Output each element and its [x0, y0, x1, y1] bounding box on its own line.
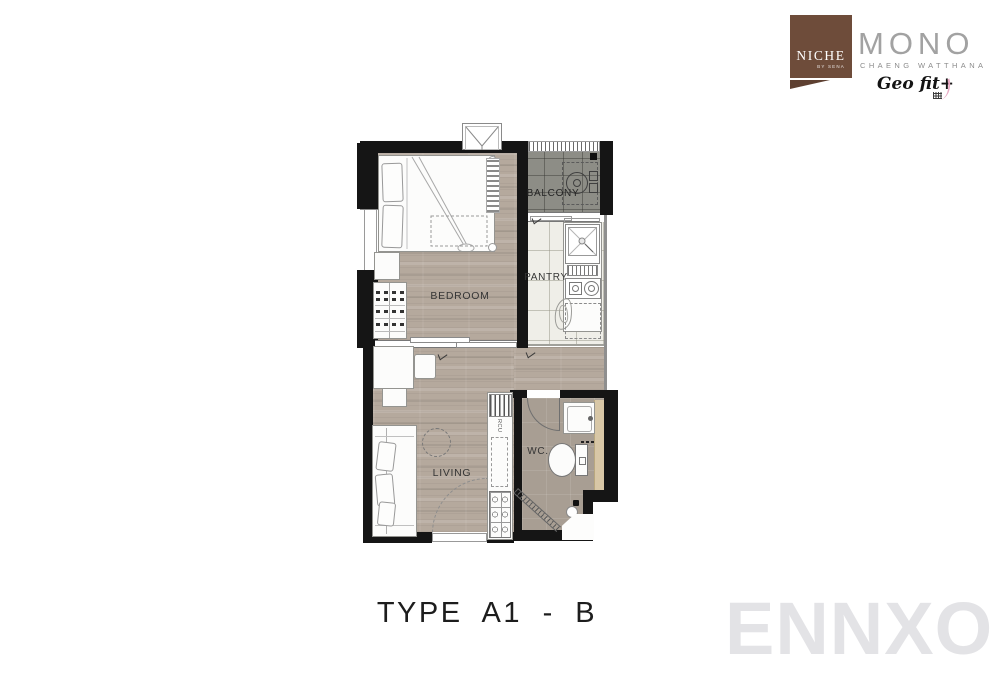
towel-rail — [581, 441, 595, 443]
kitchen-sink — [565, 224, 600, 264]
wardrobe-hangers — [376, 323, 404, 326]
wardrobe-hangers — [376, 291, 404, 294]
wardrobe-shelf-line — [375, 305, 405, 306]
wall-balcony-right — [600, 141, 613, 215]
pantry-bottom-line — [528, 344, 604, 346]
toilet-flush-button — [579, 457, 586, 465]
wardrobe-hangers — [376, 298, 404, 301]
plant-leaf — [558, 305, 568, 324]
desk — [373, 346, 414, 389]
wc-floor-drain — [573, 500, 579, 506]
floor-plan: BALCONY BEDROOM — [352, 112, 622, 562]
burner-ring — [572, 285, 579, 292]
nightstand — [374, 252, 400, 280]
washing-machine-tray — [589, 171, 598, 181]
kitchen-sink-icon — [565, 224, 600, 264]
wardrobe — [373, 282, 407, 339]
balcony-label: BALCONY — [522, 188, 584, 199]
wall-corner-topleft — [357, 143, 378, 209]
balcony-drain — [590, 153, 597, 160]
pantry-label: PANTRY — [520, 272, 572, 283]
wc-door-leaf — [559, 398, 560, 431]
bed-post — [488, 243, 497, 252]
sofa-cushion — [375, 441, 396, 472]
rcu-label: RCU — [496, 419, 502, 432]
plan-type-title: TYPE A1 - B — [352, 597, 622, 630]
page: NICHE BY SENA MONO CHAENG WATTHANA Geo f… — [0, 0, 1000, 690]
brand-logo: NICHE BY SENA MONO CHAENG WATTHANA Geo f… — [780, 8, 995, 108]
counter-dashed-section — [491, 437, 508, 487]
wall-bedroom-pantry — [517, 141, 528, 348]
balcony-door-curtain — [486, 158, 500, 213]
watermark-text: ENNXO — [725, 592, 993, 666]
toilet-tank — [575, 444, 588, 476]
brand-location: CHAENG WATTHANA — [860, 61, 986, 70]
utility-counter-strip: RCU — [487, 392, 513, 540]
wall-wc-right-upper — [604, 398, 618, 490]
washing-machine-tray — [589, 183, 598, 193]
sofa-armrest-line — [375, 436, 414, 437]
wall-wc-step — [583, 490, 618, 502]
bedroom-label: BEDROOM — [424, 290, 496, 302]
burner-ring — [588, 285, 595, 292]
living-label: LIVING — [424, 467, 480, 479]
rcu-panel-hatch — [489, 394, 512, 417]
pillow — [381, 163, 403, 203]
wardrobe-hangers — [376, 310, 404, 313]
exterior-white-notch — [593, 502, 608, 540]
ac-unit — [462, 123, 502, 150]
niche-badge-ribbon — [790, 80, 830, 89]
niche-badge-subtitle: BY SENA — [817, 65, 845, 70]
washing-machine-drum-center — [573, 179, 581, 187]
bed — [378, 155, 495, 252]
stove-burner-left — [569, 282, 582, 295]
wardrobe-shelf-line — [375, 318, 405, 319]
pillow — [381, 205, 403, 249]
wc-shaft-strip — [594, 400, 604, 490]
sofa — [372, 425, 417, 537]
desk-chair — [414, 354, 436, 379]
stove-burner-right — [584, 281, 599, 296]
entry-door-leaf — [432, 533, 487, 542]
wardrobe-shelf-line — [375, 331, 405, 332]
wall-pantry-right-thin — [604, 215, 607, 390]
bedroom-sliding-door-panel — [456, 342, 517, 348]
coffee-table — [422, 428, 451, 457]
brand-name: MONO — [858, 28, 974, 59]
sofa-cushion — [377, 501, 396, 527]
balcony-railing — [528, 141, 600, 152]
wc-basin-faucet — [588, 416, 593, 421]
ac-unit-icon — [462, 123, 502, 150]
shoe-cabinet — [489, 491, 511, 538]
geofit-accent-mark — [933, 92, 942, 99]
wc-label: WC. — [520, 446, 556, 457]
niche-badge-title: NICHE — [796, 49, 845, 63]
wall-wc-left — [514, 390, 522, 540]
desk-stool — [382, 388, 407, 407]
wc-basin — [563, 402, 595, 434]
niche-badge: NICHE BY SENA — [790, 15, 852, 78]
wall-wc-top-right — [560, 390, 618, 398]
